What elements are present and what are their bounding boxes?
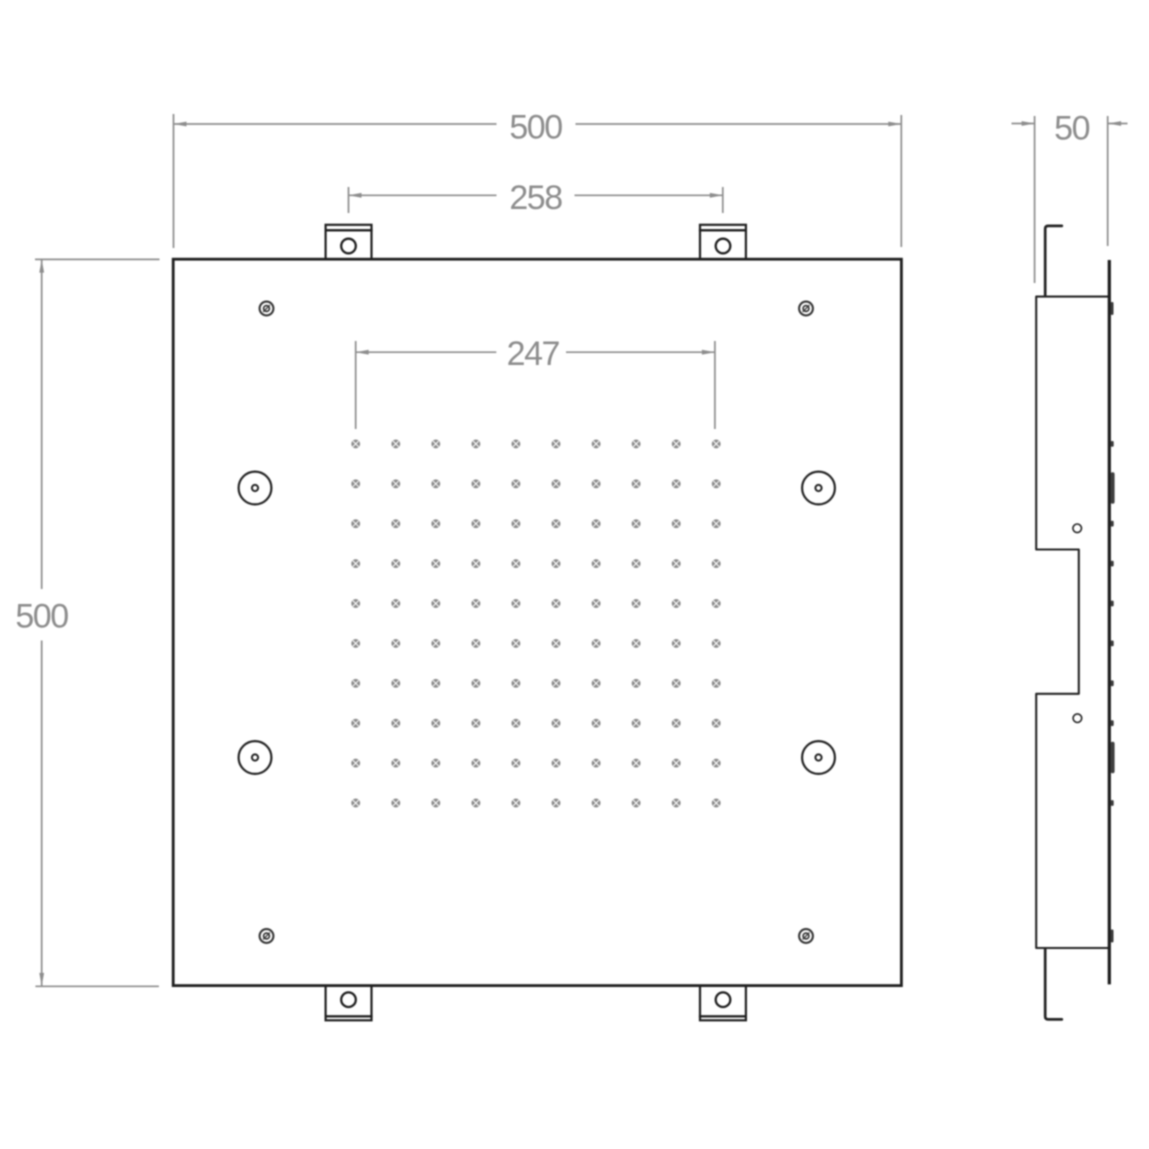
svg-text:500: 500 [15,597,68,635]
svg-text:247: 247 [507,335,560,373]
svg-text:50: 50 [1054,110,1089,148]
svg-text:258: 258 [509,179,562,217]
svg-text:500: 500 [509,109,562,147]
